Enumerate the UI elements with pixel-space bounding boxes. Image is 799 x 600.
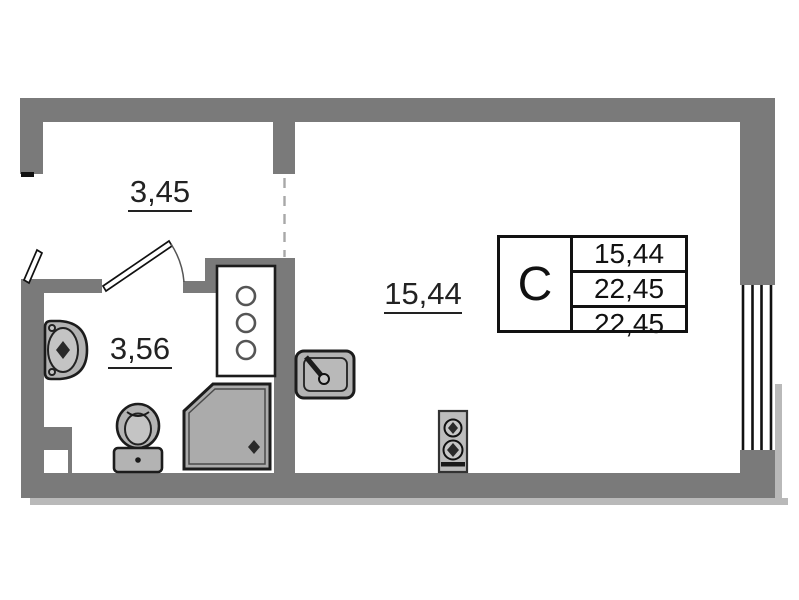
riser-shaft-icon	[217, 266, 275, 376]
stamp-area-row: 22,45	[573, 270, 685, 305]
kitchen-sink-icon	[296, 351, 354, 398]
area-label-living-room: 15,44	[384, 278, 462, 314]
shower-tray-icon	[184, 384, 270, 469]
stamp-area-row: 22,45	[573, 305, 685, 340]
bathroom-door-icon	[103, 241, 184, 291]
stove-icon	[439, 411, 467, 472]
window-icon	[743, 285, 771, 450]
floor-plan: 3,45 3,56 15,44 С 15,44 22,45 22,45	[0, 0, 799, 600]
apartment-stamp-areas: 15,44 22,45 22,45	[573, 238, 685, 330]
apartment-stamp: С 15,44 22,45 22,45	[497, 235, 688, 333]
area-label-bathroom: 3,56	[108, 333, 172, 369]
area-label-hallway: 3,45	[128, 176, 192, 212]
apartment-type-letter: С	[500, 238, 573, 330]
toilet-icon	[114, 404, 162, 472]
entrance-door-leaf-icon	[24, 250, 42, 283]
stamp-area-row: 15,44	[573, 238, 685, 270]
wash-basin-icon	[45, 321, 87, 379]
